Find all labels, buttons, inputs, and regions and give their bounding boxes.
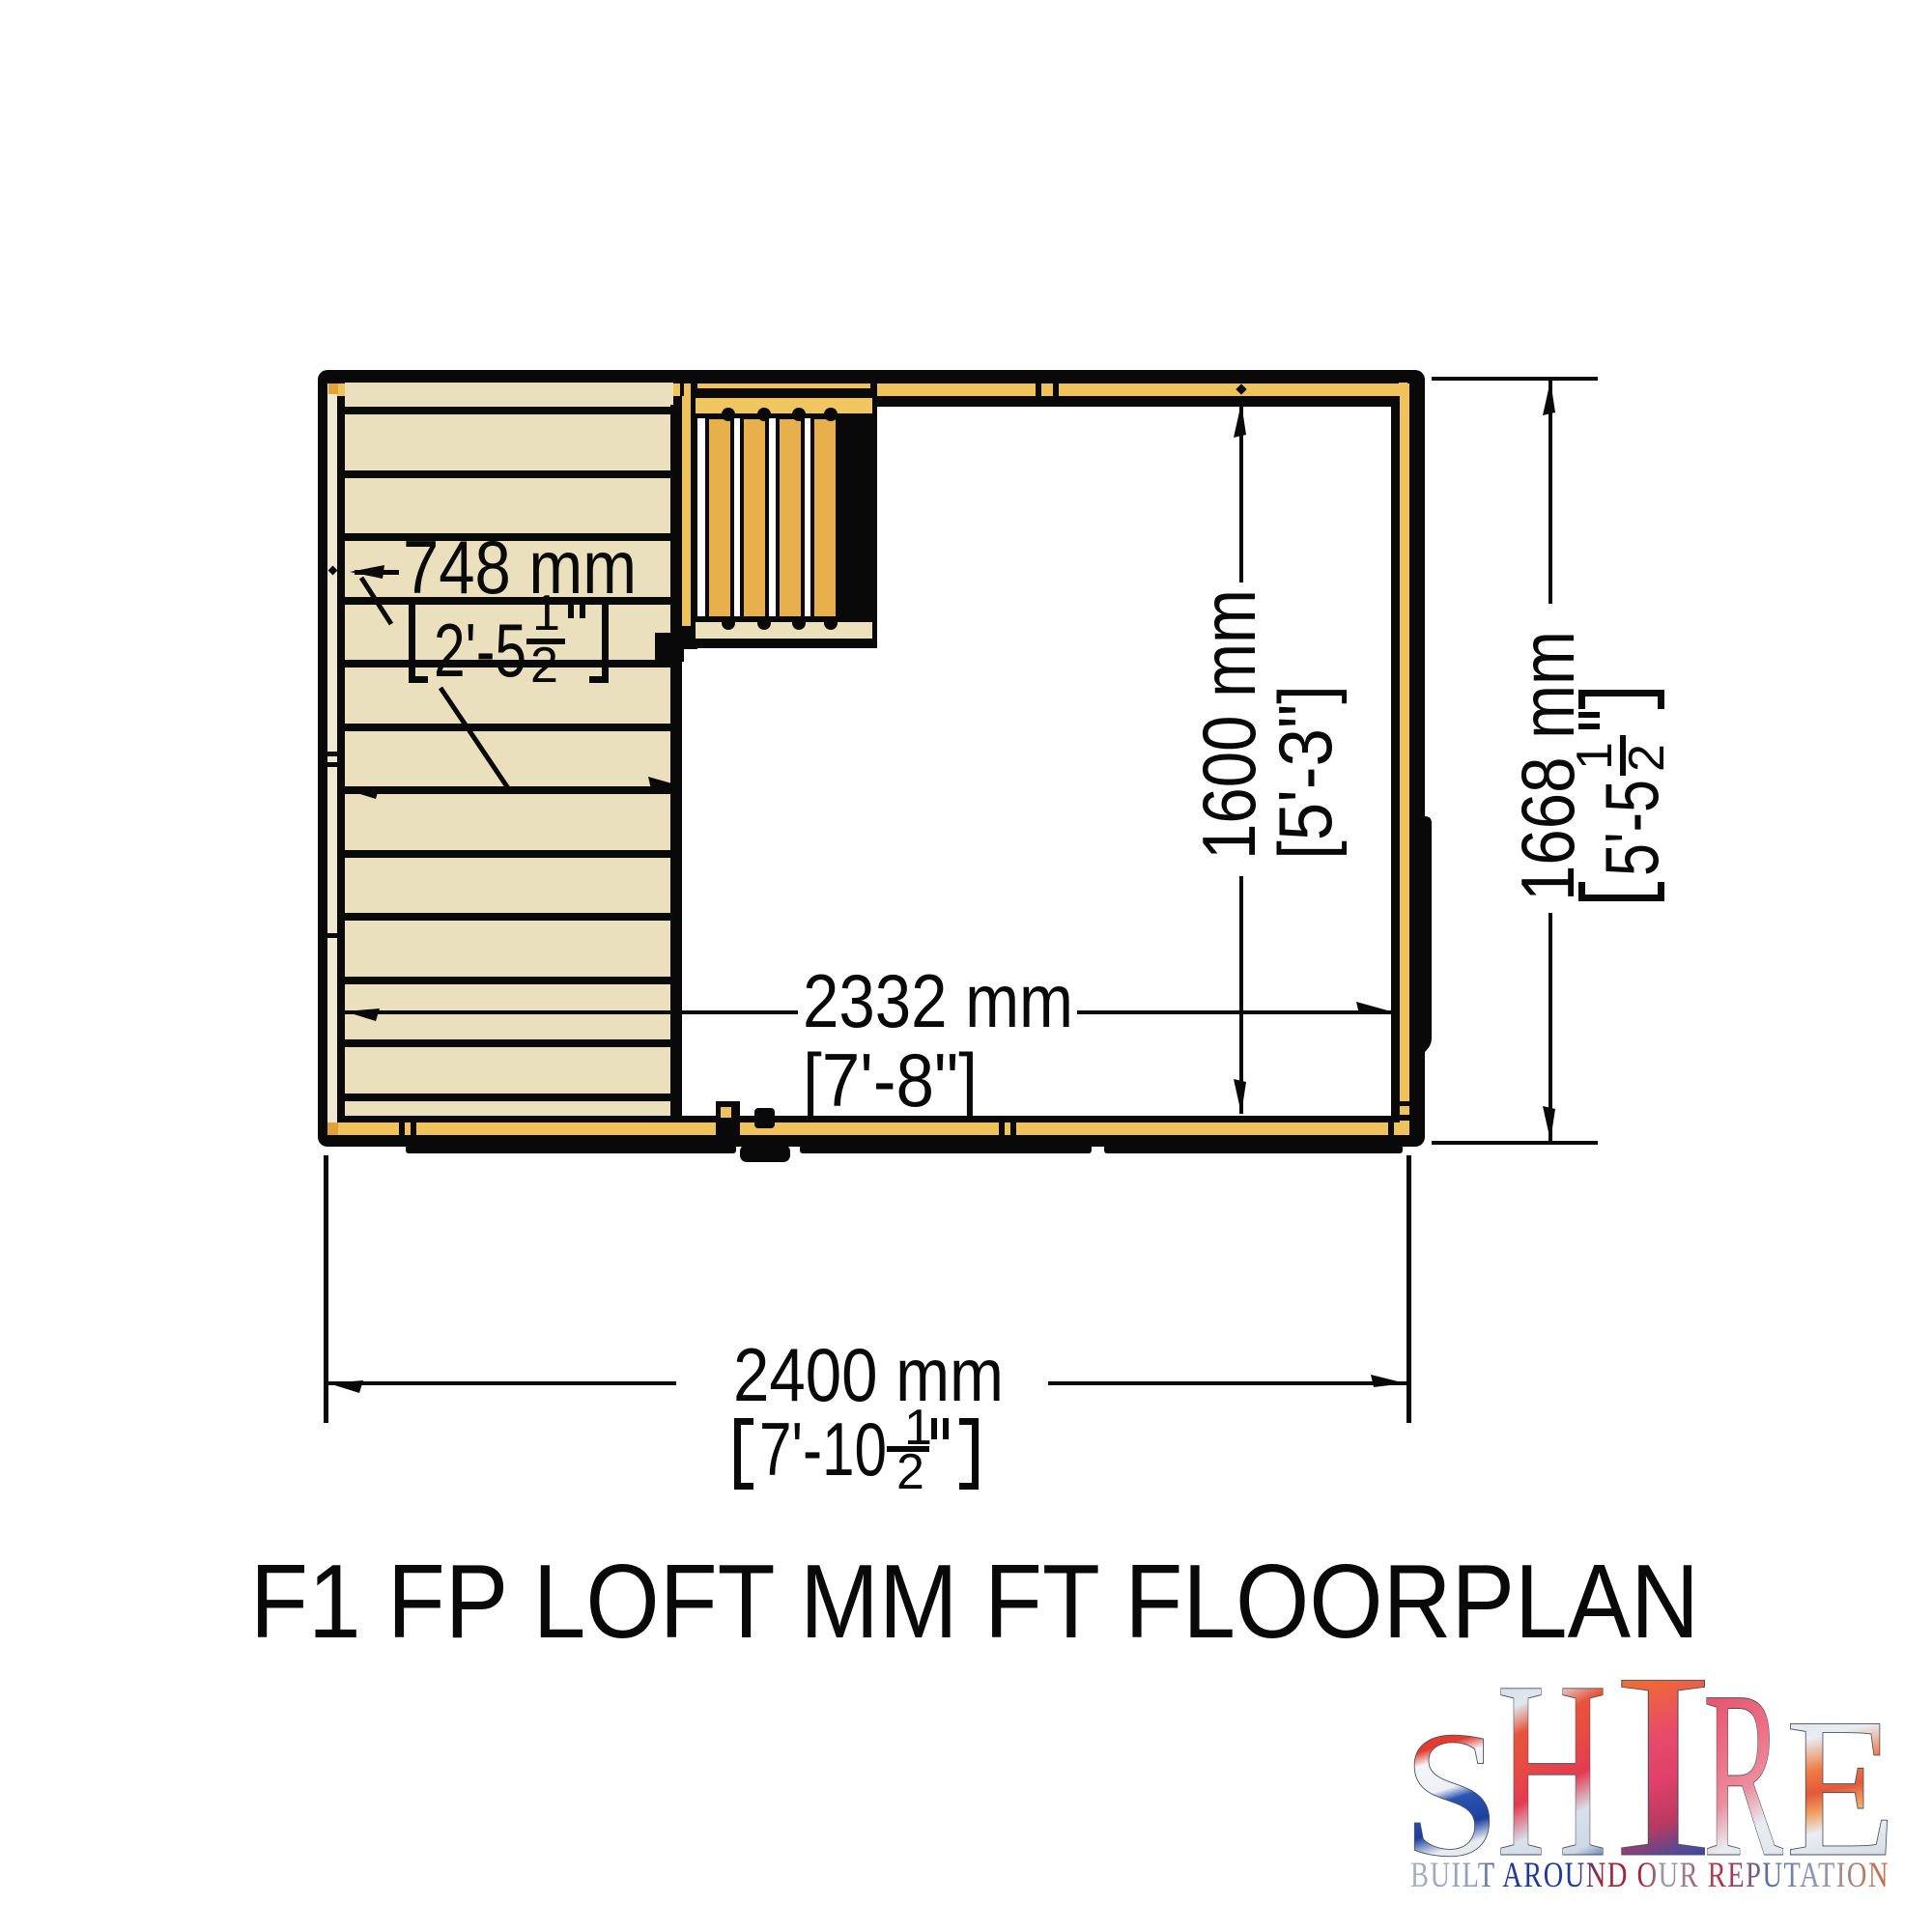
svg-text:2: 2	[530, 638, 558, 694]
svg-text:5'-5: 5'-5	[1589, 780, 1674, 876]
svg-text:748 mm: 748 mm	[403, 525, 637, 610]
svg-text:2332 mm: 2332 mm	[803, 958, 1073, 1043]
svg-text:2: 2	[896, 1444, 924, 1500]
svg-text:1600 mm: 1600 mm	[1186, 589, 1271, 860]
svg-text:[7'-8"]: [7'-8"]	[803, 1037, 978, 1122]
svg-text:2400 mm: 2400 mm	[733, 1332, 1004, 1417]
svg-text:1: 1	[1567, 742, 1623, 770]
svg-text:1: 1	[532, 585, 560, 641]
svg-text:F1 FP LOFT MM FT FLOORPLAN: F1 FP LOFT MM FT FLOORPLAN	[250, 1543, 1699, 1661]
svg-text:BUILT AROUND OUR REPUTATION: BUILT AROUND OUR REPUTATION	[1410, 1856, 1889, 1895]
svg-text:2: 2	[1619, 744, 1675, 772]
svg-text:7'-10: 7'-10	[759, 1406, 887, 1492]
svg-text:[5'-3"]: [5'-3"]	[1263, 685, 1348, 860]
svg-text:2'-5: 2'-5	[434, 608, 526, 693]
